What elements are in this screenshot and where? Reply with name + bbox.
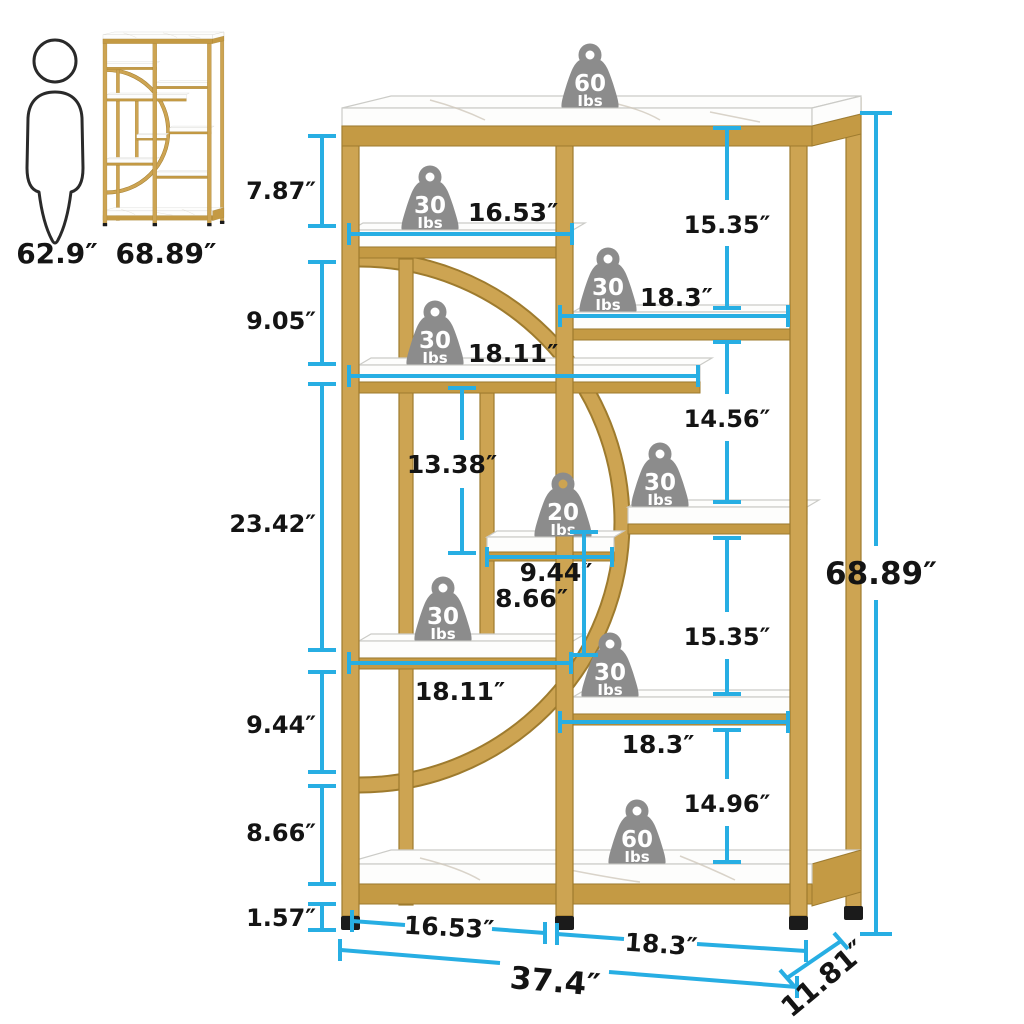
dim-left-5: 8.66″	[246, 819, 316, 847]
badge-unit: Ibs	[595, 296, 620, 314]
person-height-label: 62.9″	[16, 237, 98, 270]
dim-right-1: 15.35″	[684, 211, 771, 239]
weight-badge-mid-left: 30 Ibs	[407, 304, 463, 367]
dimension-overall-height: 68.89″	[825, 113, 937, 934]
dim-shelf-upper-right: 18.3″	[640, 283, 713, 312]
dim-left-2: 9.05″	[246, 307, 316, 335]
dim-bottom-right: 18.3″	[624, 927, 699, 961]
dim-inner-lower: 8.66″	[495, 584, 568, 613]
weight-badge-bottom: 60 Ibs	[609, 803, 665, 866]
badge-unit: Ibs	[417, 214, 442, 232]
dim-left-3: 23.42″	[229, 510, 316, 538]
dim-shelf-mid-left: 18.11″	[468, 339, 558, 368]
thumbnail-height-label: 68.89″	[115, 237, 216, 270]
dim-shelf-center-small: 9.44″	[520, 558, 593, 587]
dimension-left-stack: 7.87″ 9.05″ 23.42″ 9.44″ 8.66″ 1.57″	[229, 136, 336, 932]
person-icon	[27, 40, 83, 243]
weight-badge-mid-right: 30 Ibs	[632, 446, 688, 509]
badge-unit: Ibs	[624, 848, 649, 866]
badge-unit: Ibs	[430, 625, 455, 643]
badge-unit: Ibs	[422, 349, 447, 367]
dim-shelf-upper-left: 16.53″	[468, 198, 558, 227]
dim-left-6: 1.57″	[246, 904, 316, 932]
product-thumbnail	[103, 32, 225, 226]
diagram-canvas: 62.9″ 68.89″ 60 Ibs 30 Ibs 30 Ibs 30 Ibs…	[0, 0, 1024, 1024]
badge-unit: Ibs	[597, 681, 622, 699]
dim-inner-upper: 13.38″	[407, 450, 497, 479]
weight-badge-top: 60 Ibs	[562, 47, 618, 110]
dim-shelf-lower-right: 18.3″	[622, 730, 695, 759]
dim-overall-height: 68.89″	[825, 556, 937, 592]
dim-shelf-lower-left: 18.11″	[415, 677, 505, 706]
dim-left-1: 7.87″	[246, 177, 316, 205]
weight-badge-upper-right: 30 Ibs	[580, 251, 636, 314]
weight-badge-lower-left: 30 Ibs	[415, 580, 471, 643]
dim-right-2: 14.56″	[684, 405, 771, 433]
dim-right-3: 15.35″	[684, 623, 771, 651]
dim-left-4: 9.44″	[246, 711, 316, 739]
badge-unit: Ibs	[647, 491, 672, 509]
product-dimension-diagram: 62.9″ 68.89″ 60 Ibs 30 Ibs 30 Ibs 30 Ibs…	[0, 0, 1024, 1024]
weight-badge-upper-left: 30 Ibs	[402, 169, 458, 232]
dimension-right-stack: 15.35″ 14.56″ 15.35″ 14.96″	[684, 128, 771, 862]
badge-unit: Ibs	[577, 92, 602, 110]
dim-overall-width: 37.4″	[508, 960, 601, 1004]
dim-right-4: 14.96″	[684, 790, 771, 818]
dim-bottom-left: 16.53″	[403, 911, 495, 945]
